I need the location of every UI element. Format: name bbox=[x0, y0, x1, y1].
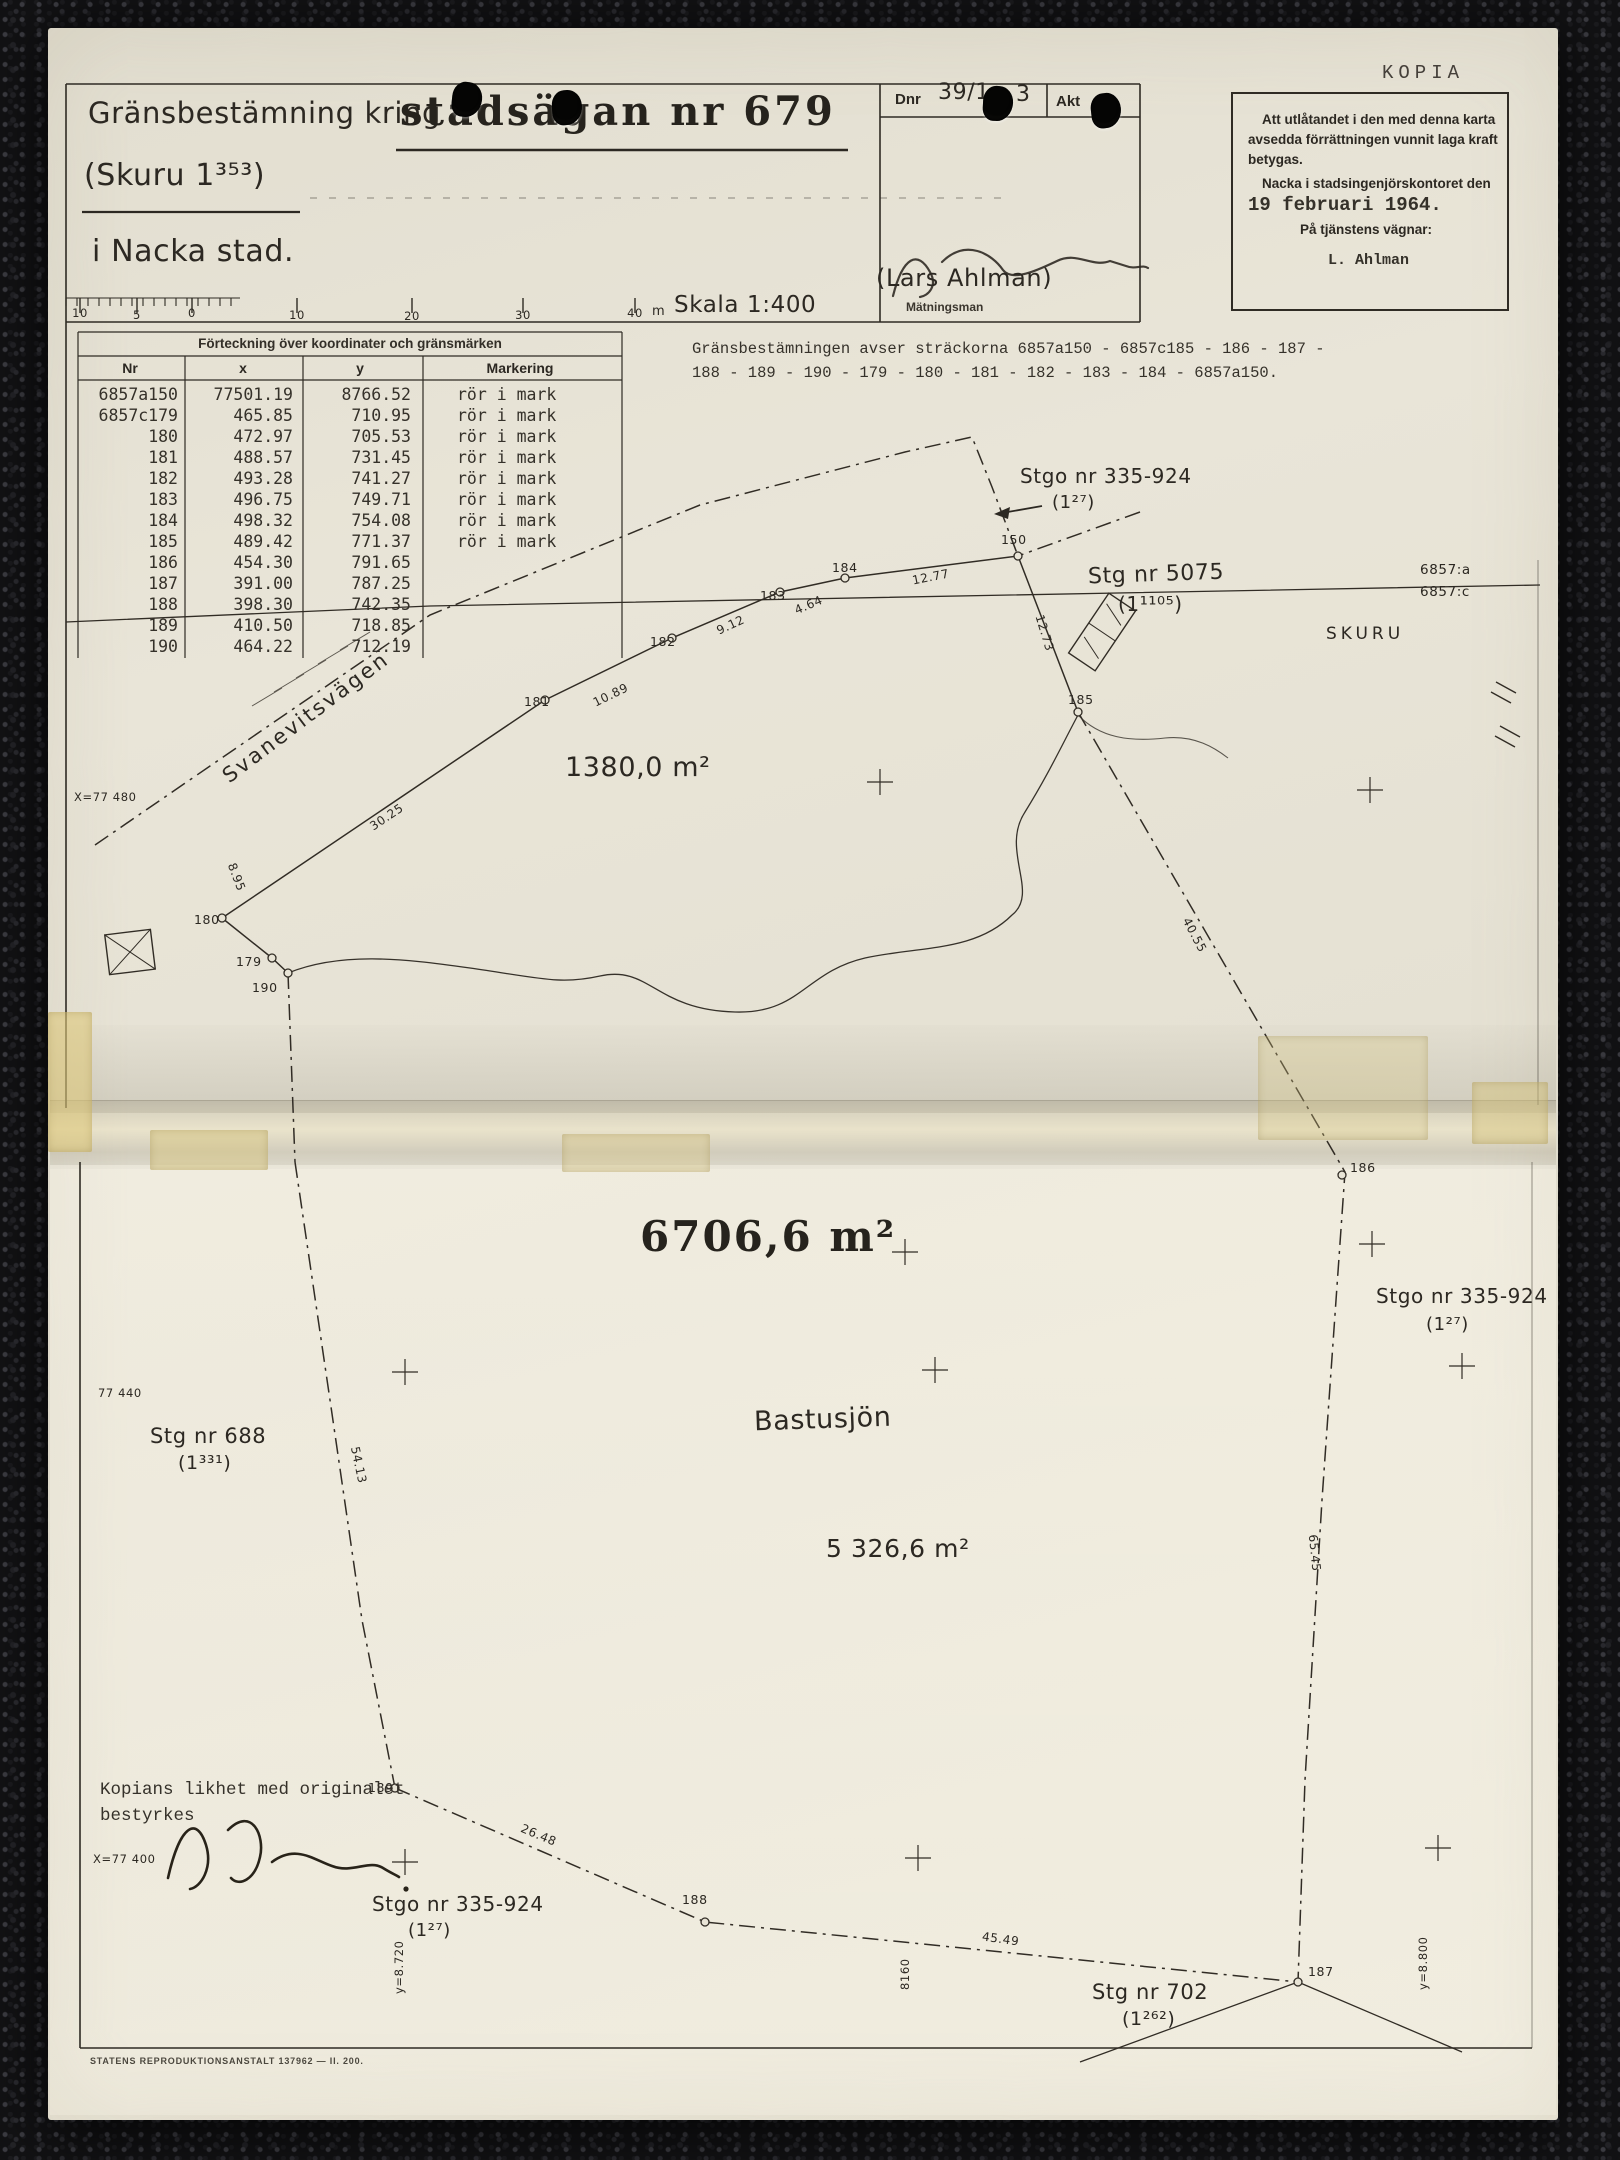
cell-markering bbox=[411, 615, 643, 636]
cell-markering: rör i mark bbox=[411, 447, 643, 468]
grid-label-x77480: X=77 480 bbox=[74, 790, 137, 804]
table-row: 188398.30742.35 bbox=[78, 594, 643, 615]
lagakraft-signature: L. Ahlman bbox=[1328, 252, 1409, 269]
table-row: 186454.30791.65 bbox=[78, 552, 643, 573]
point-label-186: 186 bbox=[1350, 1160, 1376, 1175]
cell-nr: 183 bbox=[78, 489, 178, 510]
scale-text: Skala 1:400 bbox=[674, 292, 816, 318]
repair-tape bbox=[1472, 1082, 1548, 1144]
map-title-designation: (Skuru 1³⁵³) bbox=[84, 158, 265, 193]
boundary-label-6857c: 6857:c bbox=[1420, 584, 1470, 600]
act-label: Akt bbox=[1056, 93, 1080, 110]
point-label-150: 150 bbox=[1001, 532, 1027, 547]
cell-markering: rör i mark bbox=[411, 426, 643, 447]
cell-y: 712.19 bbox=[293, 636, 411, 657]
grid-label-77440: 77 440 bbox=[98, 1386, 142, 1400]
point-label-185: 185 bbox=[1068, 692, 1094, 707]
point-label-190: 190 bbox=[252, 980, 278, 995]
table-title: Förteckning över koordinater och gränsmä… bbox=[198, 336, 502, 351]
cell-y: 791.65 bbox=[293, 552, 411, 573]
grid-label-y8800: y=8.800 bbox=[1416, 1936, 1430, 1990]
repair-tape bbox=[1258, 1036, 1428, 1140]
copy-stamp: KOPIA bbox=[1382, 62, 1464, 84]
cell-x: 493.28 bbox=[178, 468, 293, 489]
cell-y: 705.53 bbox=[293, 426, 411, 447]
certification-line2: bestyrkes bbox=[100, 1806, 195, 1826]
point-label-183: 183 bbox=[760, 588, 786, 603]
cell-nr: 186 bbox=[78, 552, 178, 573]
cell-y: 741.27 bbox=[293, 468, 411, 489]
table-header-x: x bbox=[239, 360, 247, 376]
cell-y: 787.25 bbox=[293, 573, 411, 594]
cell-nr: 6857a150 bbox=[78, 384, 178, 405]
repair-tape bbox=[150, 1130, 268, 1170]
cell-x: 498.32 bbox=[178, 510, 293, 531]
scale-tick-label: 10 bbox=[289, 308, 305, 322]
cell-markering bbox=[411, 594, 643, 615]
parcel-label-stgo335-bottom: Stgo nr 335-924 bbox=[372, 1892, 544, 1916]
scale-tick-label: 20 bbox=[404, 309, 420, 323]
map-title-part1: Gränsbestämning kring bbox=[88, 96, 441, 130]
cell-x: 496.75 bbox=[178, 489, 293, 510]
cell-nr: 180 bbox=[78, 426, 178, 447]
cell-markering: rör i mark bbox=[411, 510, 643, 531]
lagakraft-date: 19 februari 1964. bbox=[1248, 194, 1442, 216]
repair-tape bbox=[562, 1134, 710, 1172]
cell-x: 465.85 bbox=[178, 405, 293, 426]
parcel-label-stg5075-sub: (1¹¹⁰⁵) bbox=[1118, 592, 1183, 616]
print-shop-footer: STATENS REPRODUKTIONSANSTALT 137962 — II… bbox=[90, 2056, 364, 2066]
cell-nr: 188 bbox=[78, 594, 178, 615]
cell-nr: 189 bbox=[78, 615, 178, 636]
cell-y: 718.85 bbox=[293, 615, 411, 636]
table-header-y: y bbox=[356, 360, 364, 376]
lake-name: Bastusjön bbox=[754, 1402, 892, 1438]
table-row: 182493.28741.27rör i mark bbox=[78, 468, 643, 489]
grid-label-8160: 8160 bbox=[898, 1958, 912, 1990]
lagakraft-line4: Nacka i stadsingenjörskontoret den bbox=[1262, 176, 1491, 191]
cell-markering: rör i mark bbox=[411, 489, 643, 510]
parcel-label-stg688-sub: (1³³¹) bbox=[178, 1452, 231, 1474]
grid-label-x77400: X=77 400 bbox=[93, 1852, 156, 1866]
cell-x: 77501.19 bbox=[178, 384, 293, 405]
parcel-label-stgo335-top: Stgo nr 335-924 bbox=[1020, 464, 1192, 488]
table-row: 189410.50718.85 bbox=[78, 615, 643, 636]
scale-tick-label: 10 bbox=[72, 306, 88, 320]
cell-nr: 185 bbox=[78, 531, 178, 552]
point-label-188: 188 bbox=[682, 1892, 708, 1907]
cell-y: 754.08 bbox=[293, 510, 411, 531]
district-label-skuru: SKURU bbox=[1326, 624, 1404, 644]
point-label-182: 182 bbox=[650, 634, 676, 649]
cell-markering bbox=[411, 573, 643, 594]
grid-label-y8720: y=8.720 bbox=[392, 1940, 406, 1994]
parcel-label-stgo335-right: Stgo nr 335-924 bbox=[1376, 1284, 1548, 1308]
surveyor-role: Mätningsman bbox=[906, 300, 983, 314]
table-row: 6857c179465.85710.95rör i mark bbox=[78, 405, 643, 426]
map-title-municipality: i Nacka stad. bbox=[92, 234, 294, 269]
cell-x: 472.97 bbox=[178, 426, 293, 447]
cell-x: 398.30 bbox=[178, 594, 293, 615]
cell-x: 464.22 bbox=[178, 636, 293, 657]
lagakraft-line3: betygas. bbox=[1248, 152, 1303, 167]
scale-tick-label: 0 bbox=[188, 306, 196, 320]
cell-nr: 6857c179 bbox=[78, 405, 178, 426]
point-label-180: 180 bbox=[194, 912, 220, 927]
cell-nr: 190 bbox=[78, 636, 178, 657]
cell-markering: rör i mark bbox=[411, 531, 643, 552]
boundary-note-line2: 188 - 189 - 190 - 179 - 180 - 181 - 182 … bbox=[692, 364, 1278, 382]
photograph-of-survey-document: { "header": { "title_line1_normal": "Grä… bbox=[0, 0, 1620, 2160]
table-row: 190464.22712.19 bbox=[78, 636, 643, 657]
coordinate-table-body: .crow{display:flex;height:21px;line-heig… bbox=[78, 384, 643, 657]
cell-y: 710.95 bbox=[293, 405, 411, 426]
cell-x: 391.00 bbox=[178, 573, 293, 594]
point-label-187: 187 bbox=[1308, 1964, 1334, 1979]
point-label-184: 184 bbox=[832, 560, 858, 575]
cell-y: 731.45 bbox=[293, 447, 411, 468]
parcel-label-stg5075: Stg nr 5075 bbox=[1088, 560, 1225, 590]
surveyor-name: (Lars Ahlman) bbox=[876, 264, 1052, 292]
cell-x: 410.50 bbox=[178, 615, 293, 636]
table-header-nr: Nr bbox=[122, 360, 138, 376]
cell-markering: rör i mark bbox=[411, 384, 643, 405]
boundary-note-line1: Gränsbestämningen avser sträckorna 6857a… bbox=[692, 340, 1325, 358]
parcel-label-stgo335-top-sub: (1²⁷) bbox=[1052, 492, 1095, 513]
table-row: 6857a15077501.198766.52rör i mark bbox=[78, 384, 643, 405]
cell-y: 749.71 bbox=[293, 489, 411, 510]
table-row: 187391.00787.25 bbox=[78, 573, 643, 594]
parcel-label-stg702-sub: (1²⁶²) bbox=[1122, 2008, 1175, 2030]
diary-number-label: Dnr bbox=[895, 91, 921, 108]
cell-x: 488.57 bbox=[178, 447, 293, 468]
repair-tape bbox=[48, 1012, 92, 1152]
boundary-label-6857a: 6857:a bbox=[1420, 562, 1471, 578]
cell-markering: rör i mark bbox=[411, 405, 643, 426]
cell-x: 454.30 bbox=[178, 552, 293, 573]
cell-nr: 187 bbox=[78, 573, 178, 594]
diary-number-value: 39/1 bbox=[938, 80, 990, 105]
cell-markering: rör i mark bbox=[411, 468, 643, 489]
diary-number-value-tail: 3 bbox=[1016, 82, 1031, 107]
cell-y: 742.35 bbox=[293, 594, 411, 615]
scale-tick-label: 5 bbox=[133, 308, 141, 322]
certification-line1: Kopians likhet med originalet bbox=[100, 1780, 405, 1800]
table-row: 180472.97705.53rör i mark bbox=[78, 426, 643, 447]
lagakraft-line1: Att utlåtandet i den med denna karta bbox=[1262, 112, 1495, 127]
cell-markering bbox=[411, 552, 643, 573]
parcel-label-stgo335-bottom-sub: (1²⁷) bbox=[408, 1920, 451, 1941]
cell-y: 8766.52 bbox=[293, 384, 411, 405]
lagakraft-line2: avsedda förrättningen vunnit laga kraft bbox=[1248, 132, 1498, 147]
cell-nr: 181 bbox=[78, 447, 178, 468]
lagakraft-line5: På tjänstens vägnar: bbox=[1300, 222, 1432, 237]
table-row: 183496.75749.71rör i mark bbox=[78, 489, 643, 510]
table-row: 185489.42771.37rör i mark bbox=[78, 531, 643, 552]
scale-tick-label: 40 bbox=[627, 306, 643, 320]
scale-unit: m bbox=[652, 304, 665, 319]
cell-nr: 182 bbox=[78, 468, 178, 489]
table-row: 184498.32754.08rör i mark bbox=[78, 510, 643, 531]
cell-markering bbox=[411, 636, 643, 657]
cell-nr: 184 bbox=[78, 510, 178, 531]
cell-x: 489.42 bbox=[178, 531, 293, 552]
cell-y: 771.37 bbox=[293, 531, 411, 552]
parcel-label-stgo335-right-sub: (1²⁷) bbox=[1426, 1314, 1469, 1335]
parcel-label-stg688: Stg nr 688 bbox=[150, 1424, 266, 1448]
table-row: 181488.57731.45rör i mark bbox=[78, 447, 643, 468]
parcel-label-stg702: Stg nr 702 bbox=[1092, 1980, 1208, 2004]
lake-area-5326: 5 326,6 m² bbox=[826, 1534, 970, 1563]
point-label-179: 179 bbox=[236, 954, 262, 969]
point-label-181: 181 bbox=[524, 694, 550, 709]
scale-tick-label: 30 bbox=[515, 308, 531, 322]
table-header-markering: Markering bbox=[487, 360, 554, 376]
parcel-area-1380: 1380,0 m² bbox=[565, 752, 711, 783]
parcel-area-6706: 6706,6 m² bbox=[640, 1212, 896, 1261]
